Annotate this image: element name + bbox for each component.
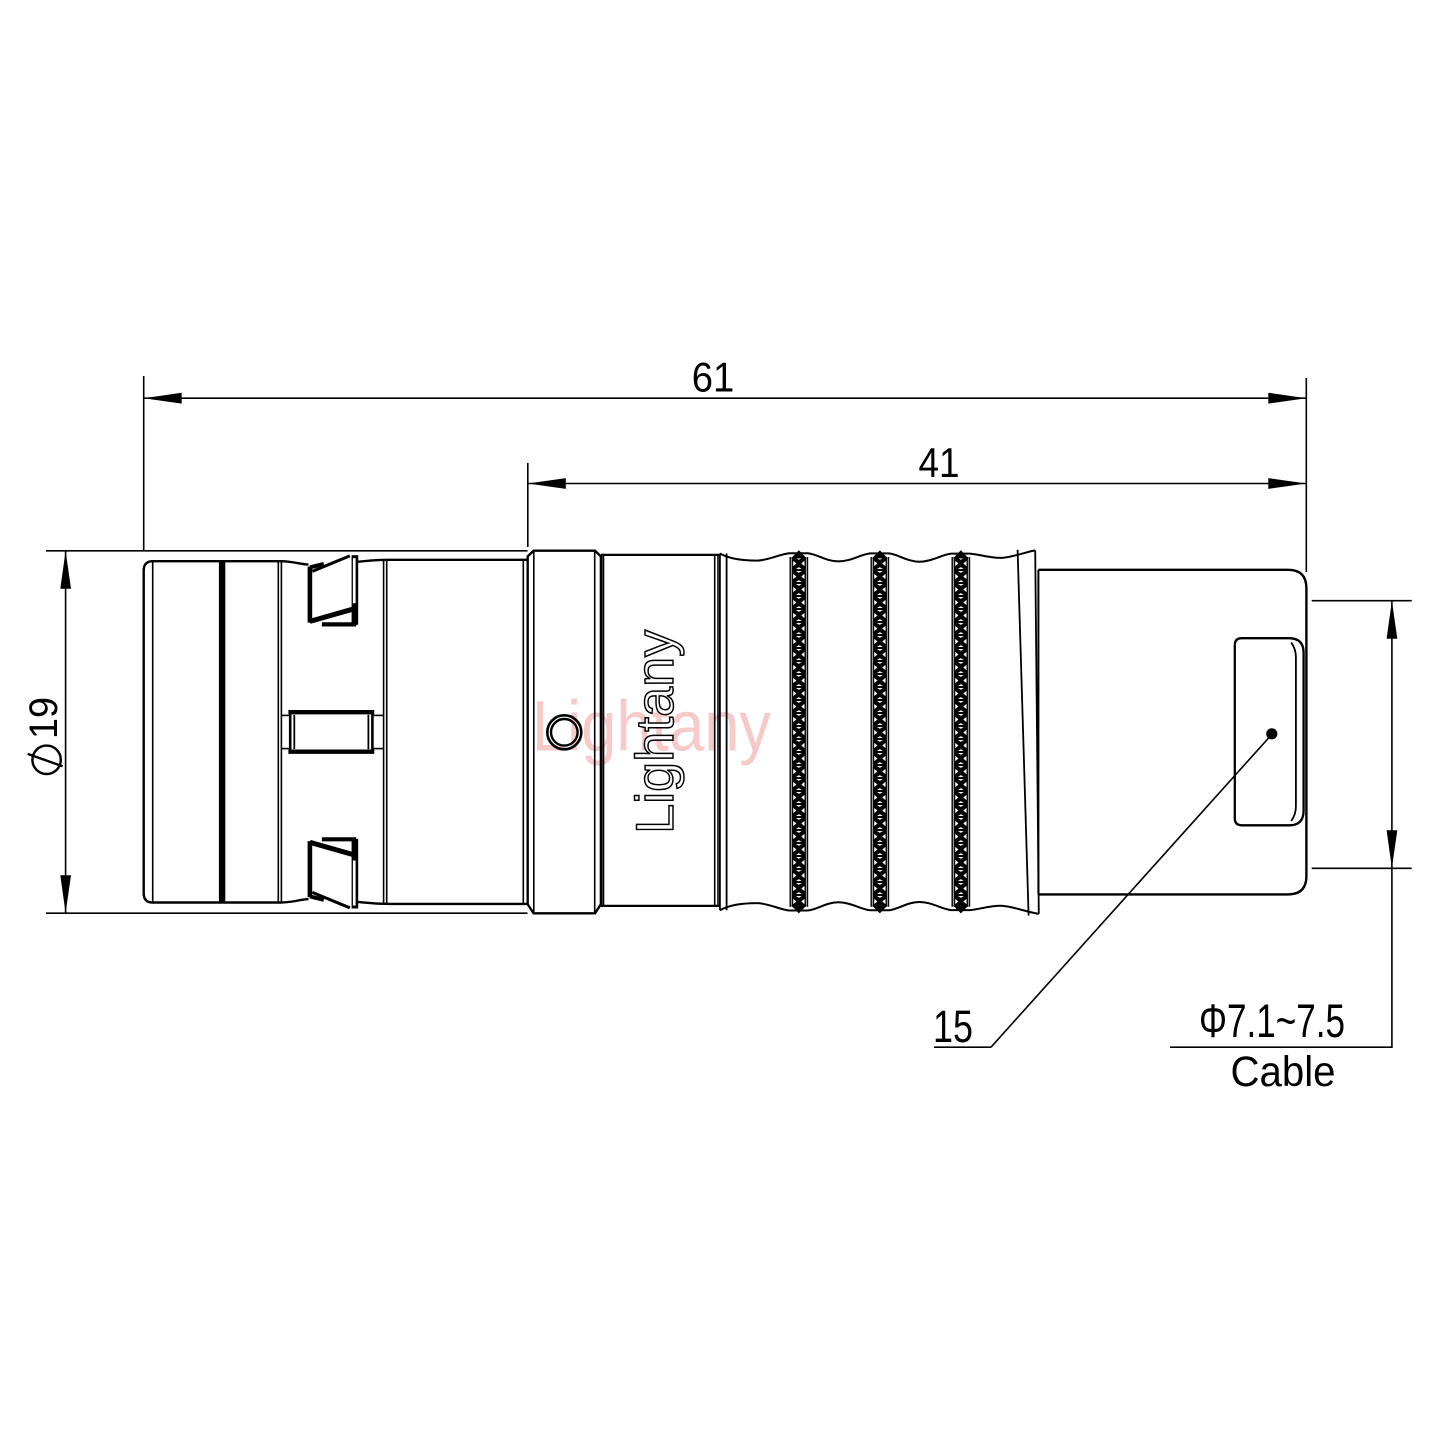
svg-text:15: 15 [933,1001,973,1052]
svg-text:41: 41 [919,439,960,486]
svg-text:Cable: Cable [1231,1048,1336,1096]
svg-text:Lightany: Lightany [626,629,685,833]
svg-text:Φ7.1~7.5: Φ7.1~7.5 [1199,994,1345,1047]
svg-text:61: 61 [692,354,735,401]
svg-text:19: 19 [22,697,66,739]
